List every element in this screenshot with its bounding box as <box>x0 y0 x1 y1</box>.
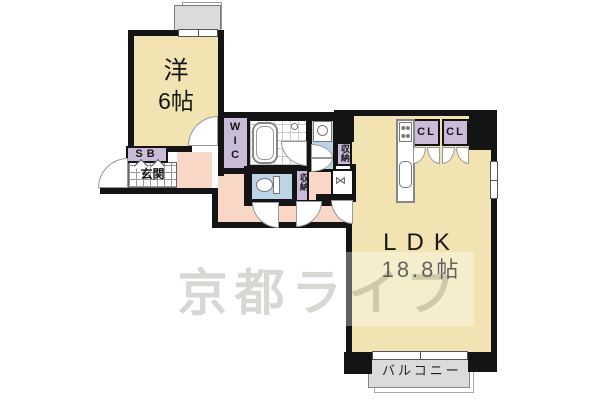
ldk-name: LDK <box>352 230 491 256</box>
wall <box>100 188 218 194</box>
washbasin-icon: ⋈ <box>335 175 346 187</box>
shoe-box-label: SB <box>126 148 168 160</box>
shower-icon <box>291 123 298 130</box>
storage-upper-label: 収納 <box>339 144 349 162</box>
entrance-label: 玄関 <box>128 168 177 181</box>
window <box>490 161 498 199</box>
western-room-area: 6帖 <box>134 89 218 114</box>
ldk-label: LDK 18.8帖 <box>352 230 491 283</box>
stove-icon <box>399 122 412 142</box>
wall <box>334 110 354 142</box>
closet-left-label: CL <box>413 126 440 138</box>
upper-balcony <box>174 5 221 32</box>
wall <box>469 116 491 150</box>
western-room-label: 洋 6帖 <box>134 58 218 114</box>
entrance-door-arc <box>98 158 128 188</box>
floor-plan: ⋈ バルコニー 洋 6帖 LDK 18.8帖 玄関 SB WIC <box>0 0 600 400</box>
wall <box>344 352 372 374</box>
wall <box>468 352 497 372</box>
washing-machine-drum <box>317 125 328 136</box>
wall <box>212 222 352 228</box>
wall <box>218 30 224 176</box>
window <box>178 29 218 37</box>
ldk-area: 18.8帖 <box>352 258 491 282</box>
bathtub-inner <box>256 126 274 160</box>
kitchen-sink-icon <box>399 161 412 188</box>
toilet-tank-icon <box>273 176 280 194</box>
closet-right-label: CL <box>442 126 469 138</box>
storage-lower-label: 収納 <box>298 173 308 191</box>
western-room-name: 洋 <box>134 58 218 86</box>
wall <box>491 116 497 362</box>
toilet-icon <box>256 178 273 192</box>
hallway <box>177 152 212 188</box>
wic-label: WIC <box>229 121 241 163</box>
balcony-window <box>372 351 468 360</box>
balcony-label: バルコニー <box>382 364 458 378</box>
